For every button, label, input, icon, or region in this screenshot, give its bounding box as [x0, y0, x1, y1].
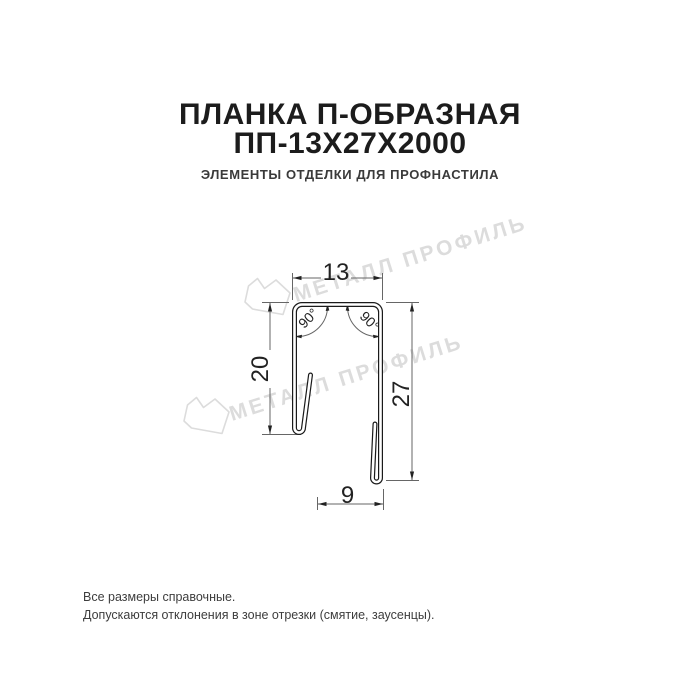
angle-label-left: 90°	[295, 305, 321, 331]
dim-right-height: 27	[388, 381, 415, 408]
profile-metal-inner	[295, 305, 381, 483]
dim-bottom-width: 9	[341, 482, 354, 509]
footer-note-line2: Допускаются отклонения в зоне отрезки (с…	[83, 606, 435, 624]
product-sheet: ПЛАНКА П-ОБРАЗНАЯ ПП-13Х27Х2000 ЭЛЕМЕНТЫ…	[0, 0, 700, 700]
footer-note-line1: Все размеры справочные.	[83, 588, 435, 606]
metall-profil-logo-icon	[184, 398, 229, 434]
dim-left-height: 20	[247, 356, 274, 383]
dim-top-width: 13	[323, 259, 350, 286]
footer-notes: Все размеры справочные. Допускаются откл…	[83, 588, 435, 624]
watermark-layer: МЕТАЛЛ ПРОФИЛЬ МЕТАЛЛ ПРОФИЛЬ	[184, 212, 530, 434]
metall-profil-logo-icon	[245, 279, 290, 315]
profile-outline	[295, 305, 381, 483]
